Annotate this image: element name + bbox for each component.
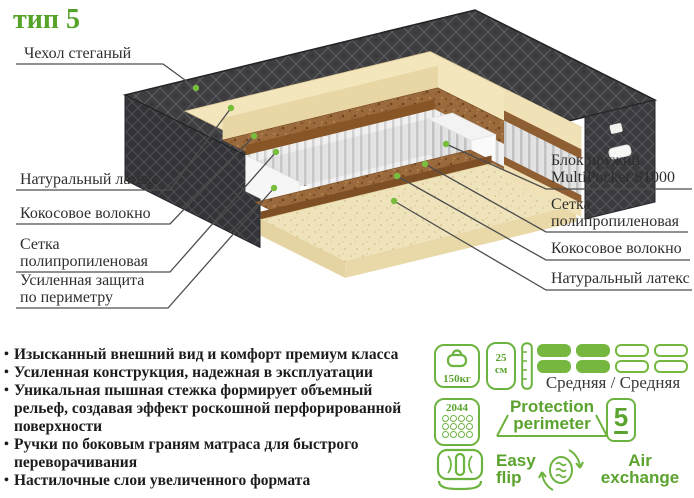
feature-item: • Уникальная пышная стежка формирует объ… [4,382,428,436]
label-springs-right: Блок пружин MultiPocket S1000 [551,152,675,186]
dot-latex-left [228,105,234,111]
firmness-bar-filled [576,344,610,357]
dot-springs [443,141,449,147]
bullet-icon: • [4,436,9,454]
feature-item: • Изысканный внешний вид и комфорт преми… [4,346,428,364]
label-perimeter-left: Усиленная защита по периметру [20,272,144,306]
firmness-bar-empty [615,360,649,373]
dot-mesh-right [422,161,428,167]
dot-latex-right [391,198,397,204]
firmness-indicator [537,344,688,373]
protection-perimeter-badge: Protection perimeter [492,398,612,444]
dot-coconut-left [251,133,257,139]
height-badge: 25 см [486,342,516,390]
dot-perimeter [271,185,277,191]
firmness-bar-empty [654,360,688,373]
spring-dots-icon [442,415,473,438]
ruler-icon [521,342,533,390]
label-latex-left: Натуральный латекс [20,171,159,188]
kettlebell-icon [444,348,470,368]
label-coconut-right: Кокосовое волокно [551,240,682,257]
air-exchange-icon [536,446,586,494]
page-title: тип 5 [13,4,80,36]
bullet-icon: • [4,382,9,400]
easy-flip-icon [436,448,484,492]
bullet-icon: • [4,346,9,364]
spring-count-badge: 2044 [434,398,480,446]
max-weight-value: 150кг [436,373,478,385]
firmness-bar-filled [537,344,571,357]
max-weight-badge: 150кг [434,344,480,388]
firmness-label: Средняя / Средняя [534,373,692,393]
dot-coconut-right [394,173,400,179]
warranty-badge: 5 [606,398,636,442]
mattress-infographic: тип 5 Чехол стеганый Натуральный латекс … [0,0,694,498]
height-value: 25 [488,352,514,364]
air-exchange-label: Air exchange [590,452,690,486]
feature-item: • Ручки по боковым граням матраса для бы… [4,436,428,472]
firmness-bar-empty [615,344,649,357]
warranty-value: 5 [608,404,634,430]
dot-mesh-left [273,149,279,155]
label-latex-right: Натуральный латекс [551,270,690,287]
spring-count-value: 2044 [436,402,478,414]
height-unit: см [488,364,514,376]
bullet-icon: • [4,472,9,490]
firmness-bar-filled [576,360,610,373]
firmness-bar-filled [537,360,571,373]
feature-list: • Изысканный внешний вид и комфорт преми… [4,346,428,490]
perimeter-trapezoid-icon [492,413,612,439]
bullet-icon: • [4,364,9,382]
feature-item: • Усиленная конструкция, надежная в эксп… [4,364,428,382]
label-coconut-left: Кокосовое волокно [20,205,151,222]
label-mesh-right: Сетка полипропиленовая [551,196,679,230]
easy-flip-label: Easy flip [496,452,536,486]
label-cover: Чехол стеганый [24,45,131,62]
feature-item: • Настилочные слои увеличенного формата [4,472,428,490]
dot-cover [193,85,199,91]
label-mesh-left: Сетка полипропиленовая [20,236,148,270]
firmness-bar-empty [654,344,688,357]
badges-panel: 150кг 25 см Средняя / Средняя 2044 [430,338,694,498]
